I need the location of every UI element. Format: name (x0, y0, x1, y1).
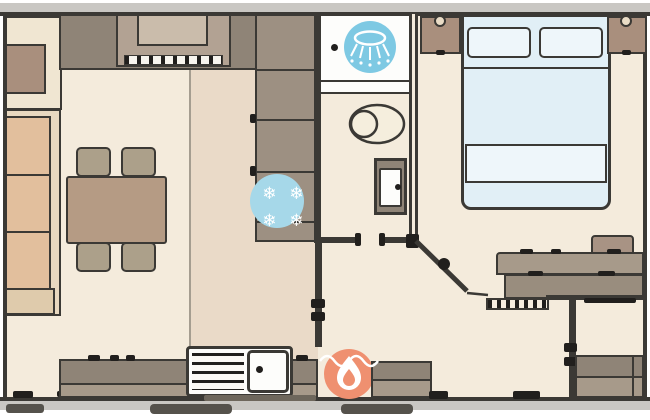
unit-shelf-line (257, 69, 314, 71)
sink-plinth (204, 395, 316, 401)
wall-bathroom-bottom (314, 237, 361, 243)
front-door-threshold (429, 391, 448, 399)
door-hinge (311, 299, 325, 308)
hall-bench (371, 361, 432, 398)
unit-shelf-line (257, 171, 314, 173)
wardrobe-unit (575, 355, 644, 398)
cabinet-notch (622, 50, 631, 55)
shower-icon (344, 21, 396, 73)
duvet-turnover (465, 144, 607, 183)
dresser-handle (528, 271, 543, 276)
snowflake-icon: ❄ (262, 213, 276, 230)
snowflake-icon: ❄ (262, 186, 276, 203)
dining-chair (76, 242, 111, 272)
wall-right (643, 12, 647, 401)
unit-handle (250, 114, 256, 123)
threshold-mark (584, 298, 636, 303)
door-post (406, 234, 419, 248)
snowflake-icon: ❄ (289, 213, 303, 230)
threshold-mark (13, 391, 33, 398)
pillow (467, 27, 531, 58)
worktop-handle (126, 355, 135, 361)
front-door-threshold (513, 391, 540, 399)
floor-divider-line (189, 70, 191, 362)
wall-kitchen-hall (315, 242, 322, 347)
unit-shelf-line (257, 119, 314, 121)
entrance-step (341, 404, 413, 414)
gas-heater-icon (324, 349, 374, 399)
pillow (539, 27, 603, 58)
bedroom-door-track (486, 298, 549, 310)
chassis-band-top (0, 3, 650, 12)
shower-tray-edge (321, 80, 410, 82)
cooker-knobs (124, 55, 223, 65)
sink-bowl (247, 350, 289, 393)
dining-chair (76, 147, 111, 177)
door-hinge (564, 343, 577, 352)
basin-tap (395, 184, 401, 190)
dressing-table-top (496, 252, 644, 275)
cabinet-handle (620, 15, 632, 27)
bench-front (373, 379, 430, 396)
wardrobe-divider (632, 357, 634, 396)
snowflake-icon: ❄ (289, 186, 303, 203)
snowflake-glyphs: ❄ ❄ ❄ ❄ (250, 174, 316, 242)
fridge-freezer-icon: ❄ ❄ ❄ ❄ (250, 174, 304, 228)
dresser-handle (598, 271, 615, 276)
caravan-floorplan: ❄ ❄ ❄ ❄ (0, 0, 650, 420)
sofa-armrest (5, 288, 55, 315)
entrance-step (6, 404, 44, 413)
tv-unit (5, 44, 46, 94)
sheet-fold-line (464, 67, 608, 69)
sofa-cushion-line (7, 174, 49, 176)
sofa-cushion-line (7, 231, 49, 233)
worktop-handle (88, 355, 100, 361)
entrance-step (150, 404, 232, 414)
dresser-handle (551, 249, 561, 254)
bathroom-door-jamb (355, 233, 361, 246)
worktop-handle (296, 355, 308, 361)
shower-drain (331, 44, 338, 51)
cabinet-notch (436, 50, 445, 55)
wall-bathroom-bedroom (409, 14, 418, 244)
door-hinge (311, 312, 325, 321)
worktop-handle (110, 355, 119, 361)
dresser-handle (520, 249, 533, 254)
cooker-door (137, 14, 208, 46)
cabinet-handle (434, 15, 446, 27)
dining-chair (121, 242, 156, 272)
sink-drainer (192, 353, 244, 390)
sink-tap (256, 366, 263, 373)
dresser-handle (607, 249, 621, 254)
sofa-seat (5, 116, 51, 290)
dining-chair (121, 147, 156, 177)
dining-table (66, 176, 167, 244)
chassis-band-bottom (0, 401, 650, 410)
bathroom-door-jamb (379, 233, 385, 246)
